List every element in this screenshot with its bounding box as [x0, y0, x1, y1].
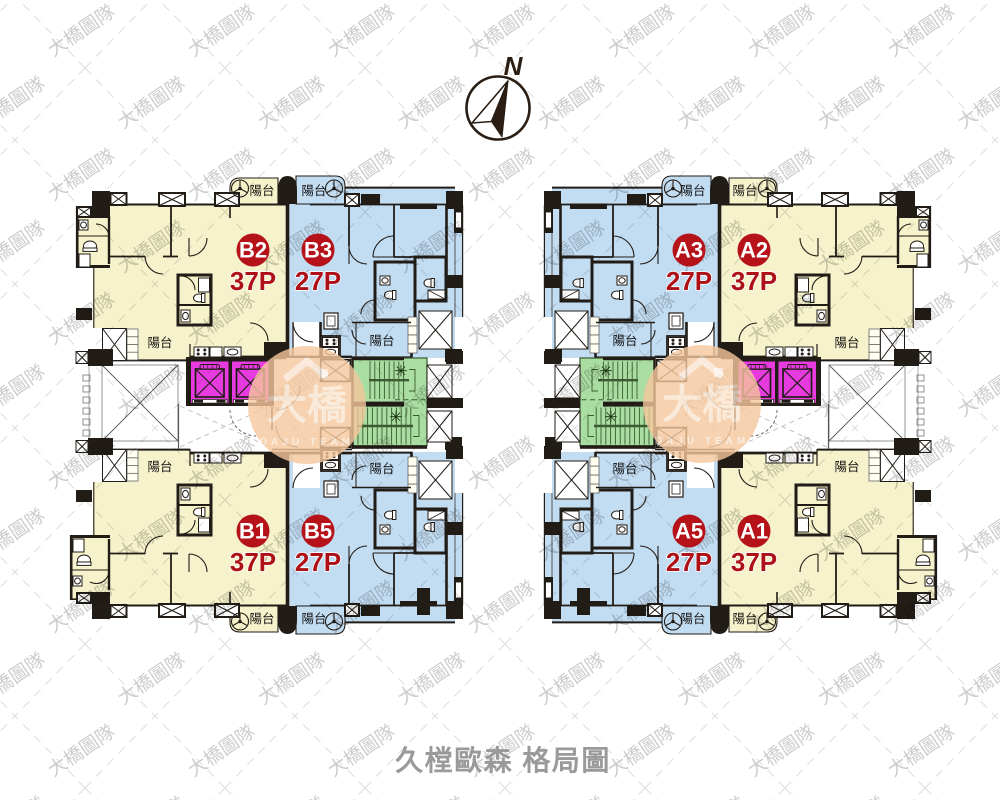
svg-text:A5: A5 [675, 519, 703, 544]
svg-text:27P: 27P [666, 547, 712, 577]
svg-text:37P: 37P [230, 266, 276, 296]
svg-text:陽台: 陽台 [249, 183, 274, 198]
svg-text:37P: 37P [230, 547, 276, 577]
svg-text:A2: A2 [740, 238, 768, 263]
svg-text:陽台: 陽台 [147, 335, 172, 350]
svg-text:DAJU TEAM: DAJU TEAM [655, 436, 749, 447]
svg-text:N: N [504, 51, 524, 81]
svg-text:陽台: 陽台 [249, 611, 274, 626]
svg-text:37P: 37P [731, 547, 777, 577]
svg-text:陽台: 陽台 [732, 611, 757, 626]
svg-text:陽台: 陽台 [612, 461, 637, 476]
svg-text:27P: 27P [666, 266, 712, 296]
svg-text:A1: A1 [740, 519, 768, 544]
svg-text:DAJU TEAM: DAJU TEAM [260, 437, 354, 448]
svg-text:27P: 27P [295, 547, 341, 577]
svg-text:陽台: 陽台 [147, 459, 172, 474]
svg-text:陽台: 陽台 [301, 611, 326, 626]
svg-text:B3: B3 [304, 238, 332, 263]
svg-text:陽台: 陽台 [834, 459, 859, 474]
svg-text:陽台: 陽台 [369, 333, 394, 348]
svg-text:大橋: 大橋 [662, 383, 742, 427]
svg-text:陽台: 陽台 [732, 183, 757, 198]
svg-text:陽台: 陽台 [301, 183, 326, 198]
svg-text:陽台: 陽台 [834, 335, 859, 350]
svg-text:37P: 37P [731, 266, 777, 296]
svg-text:B2: B2 [239, 238, 267, 263]
svg-text:A3: A3 [675, 238, 703, 263]
svg-text:陽台: 陽台 [680, 611, 705, 626]
svg-text:B1: B1 [239, 519, 267, 544]
svg-text:B5: B5 [304, 519, 332, 544]
svg-text:陽台: 陽台 [612, 333, 637, 348]
svg-text:27P: 27P [295, 266, 341, 296]
svg-text:陽台: 陽台 [680, 183, 705, 198]
svg-text:久樘歐森 格局圖: 久樘歐森 格局圖 [395, 745, 611, 776]
svg-text:大橋: 大橋 [267, 384, 347, 428]
svg-text:陽台: 陽台 [369, 461, 394, 476]
